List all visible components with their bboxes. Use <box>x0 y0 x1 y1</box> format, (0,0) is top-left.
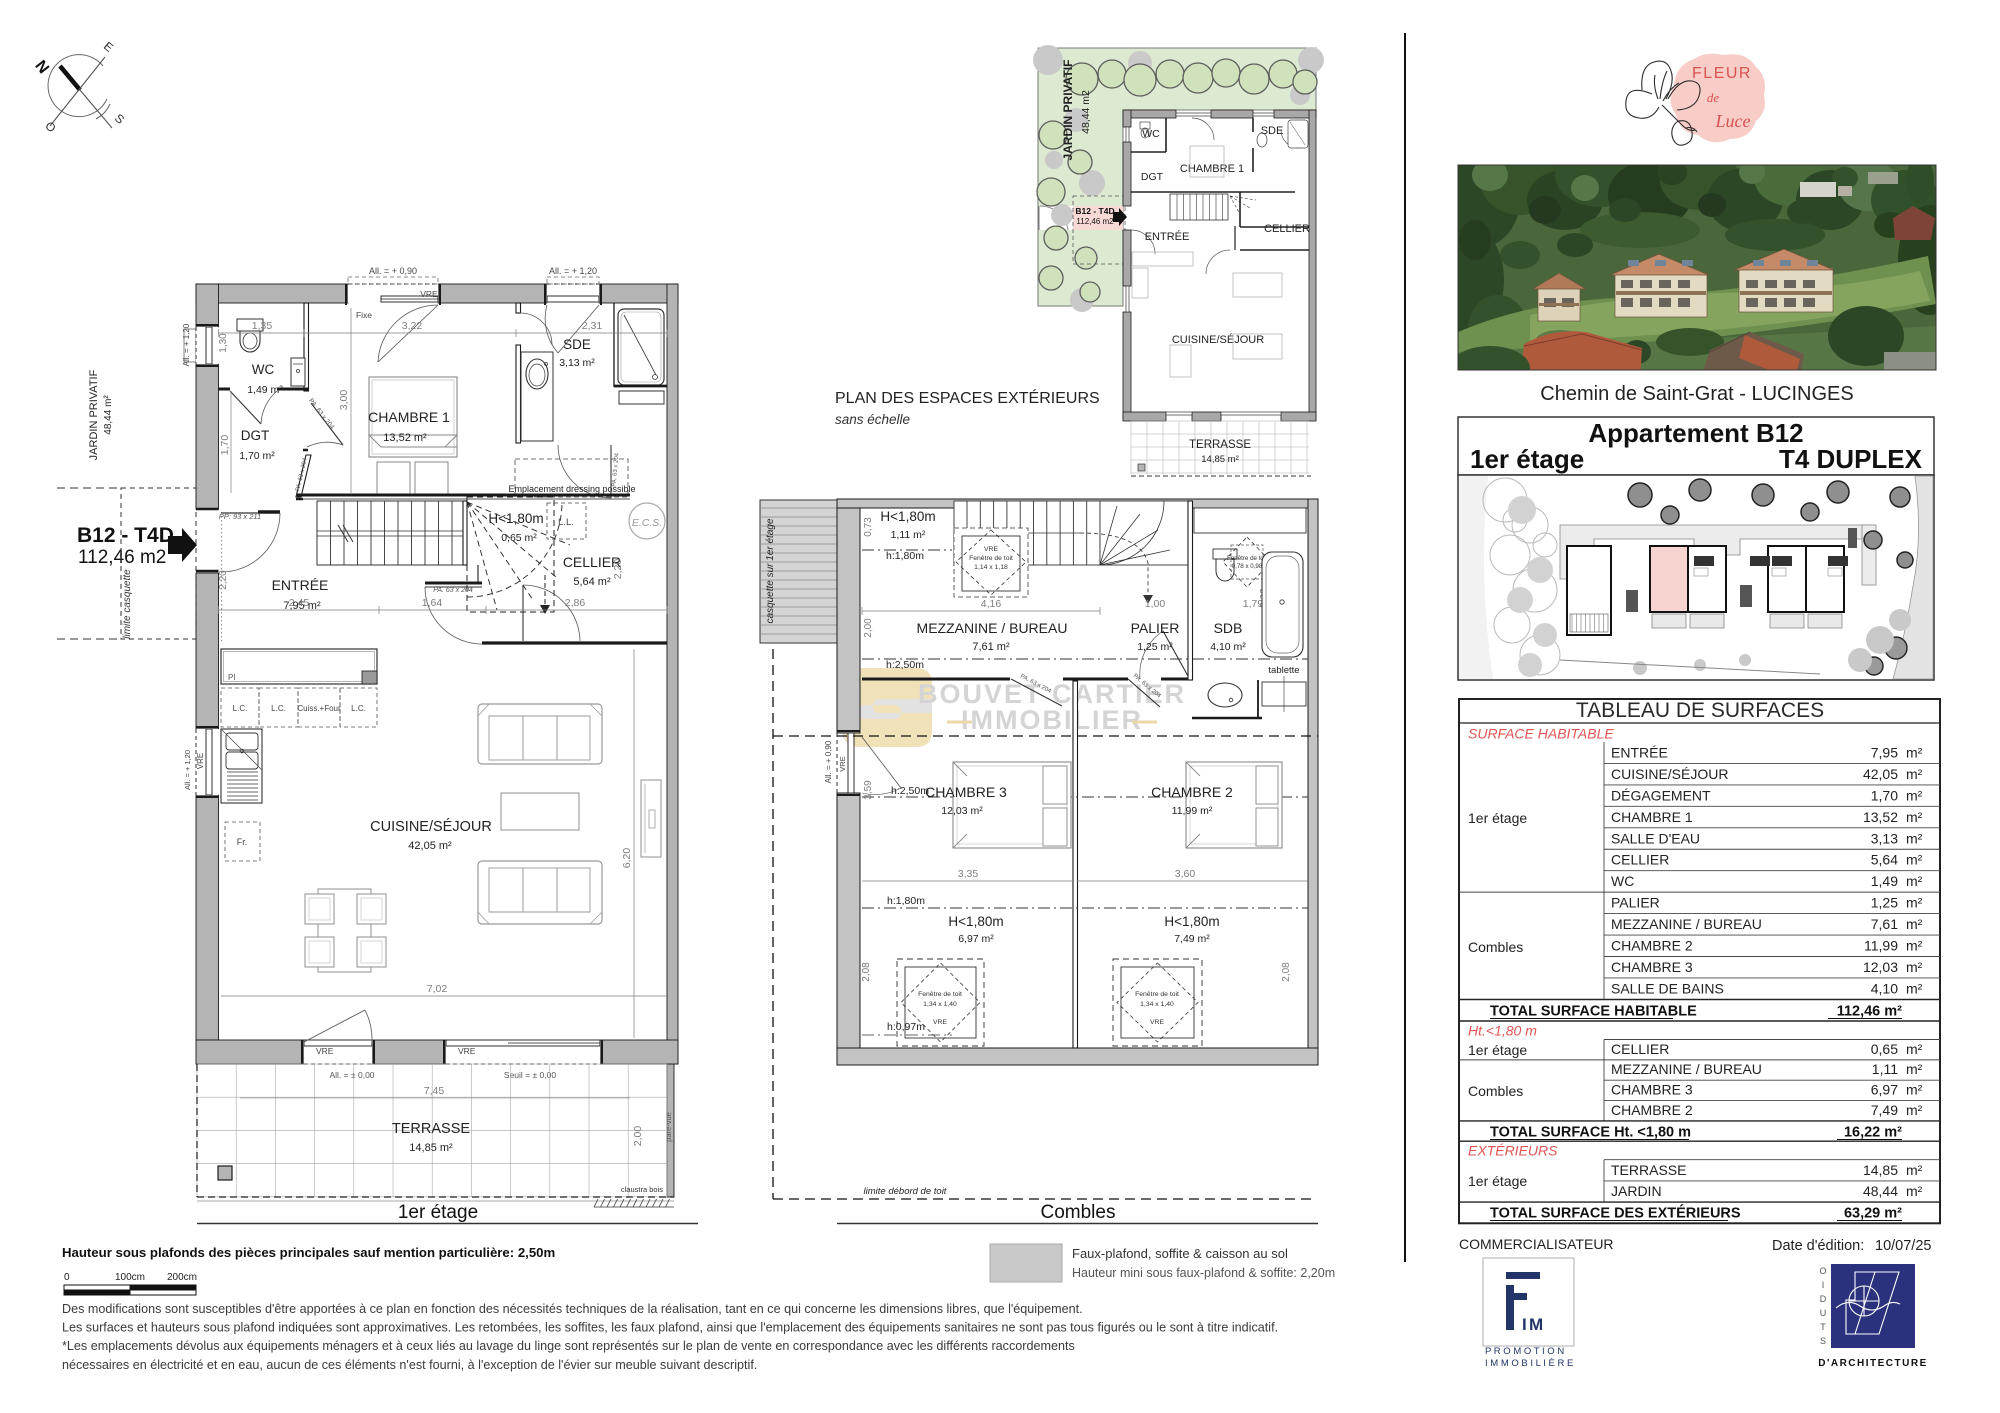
svg-text:4,10: 4,10 <box>1871 980 1898 996</box>
svg-text:VRE: VRE <box>420 289 438 299</box>
svg-text:Des modifications sont suscept: Des modifications sont susceptibles d'êt… <box>62 1302 1083 1316</box>
svg-text:M: M <box>1529 1315 1543 1334</box>
svg-text:L.C.: L.C. <box>351 704 366 713</box>
svg-text:6,20: 6,20 <box>621 848 633 869</box>
svg-text:112,46 m²: 112,46 m² <box>1837 1004 1902 1020</box>
svg-text:casquette sur 1er étage: casquette sur 1er étage <box>765 518 776 624</box>
svg-text:*Les emplacements dévolus aux: *Les emplacements dévolus aux équipement… <box>62 1339 1075 1353</box>
svg-text:Fenêtre de toit: Fenêtre de toit <box>918 991 962 998</box>
svg-text:m²: m² <box>1906 895 1923 911</box>
svg-text:4,16: 4,16 <box>981 598 1002 610</box>
svg-text:SDE: SDE <box>1261 125 1284 137</box>
svg-text:Emplacement dressing possible: Emplacement dressing possible <box>508 484 635 494</box>
svg-text:h:1,80m: h:1,80m <box>886 550 924 562</box>
svg-text:1,25: 1,25 <box>1871 895 1898 911</box>
svg-text:1,70 m²: 1,70 m² <box>239 450 275 462</box>
svg-text:m²: m² <box>1906 1082 1923 1098</box>
svg-text:SURFACE HABITABLE: SURFACE HABITABLE <box>1468 726 1614 742</box>
svg-text:2,08: 2,08 <box>861 962 872 982</box>
svg-text:3,13 m²: 3,13 m² <box>559 357 595 369</box>
svg-text:E.C.S.: E.C.S. <box>632 517 662 529</box>
svg-text:1,00: 1,00 <box>1145 598 1166 610</box>
svg-text:ENTRÉE: ENTRÉE <box>1145 230 1190 243</box>
svg-text:de: de <box>1707 90 1720 105</box>
svg-text:200cm: 200cm <box>167 1272 197 1283</box>
svg-text:m²: m² <box>1906 1162 1923 1178</box>
svg-text:EXTÉRIEURS: EXTÉRIEURS <box>1468 1143 1558 1159</box>
svg-text:CUISINE/SÉJOUR: CUISINE/SÉJOUR <box>1611 766 1728 782</box>
svg-text:PALIER: PALIER <box>1131 620 1180 636</box>
svg-text:48,44 m2: 48,44 m2 <box>1080 90 1092 134</box>
svg-text:14,85: 14,85 <box>1863 1162 1898 1178</box>
svg-text:Seuil = ± 0,00: Seuil = ± 0,00 <box>504 1070 556 1080</box>
svg-text:7,95: 7,95 <box>1871 744 1898 760</box>
svg-text:Hauteur sous plafonds des pièc: Hauteur sous plafonds des pièces princip… <box>62 1245 555 1260</box>
svg-text:0,65 m²: 0,65 m² <box>501 532 537 544</box>
svg-text:m²: m² <box>1906 1041 1923 1057</box>
svg-text:claustra bois: claustra bois <box>621 1185 663 1194</box>
svg-text:Chemin de Saint-Grat - LUCINGE: Chemin de Saint-Grat - LUCINGES <box>1540 383 1853 405</box>
svg-text:1er étage: 1er étage <box>1470 444 1584 474</box>
svg-text:TOTAL SURFACE Ht. <1,80 m: TOTAL SURFACE Ht. <1,80 m <box>1490 1125 1691 1141</box>
svg-text:sans échelle: sans échelle <box>835 412 910 427</box>
svg-text:7,49: 7,49 <box>1871 1102 1898 1118</box>
svg-text:limite casquette: limite casquette <box>122 569 133 639</box>
svg-text:h:0,97m: h:0,97m <box>887 1021 925 1033</box>
svg-text:10/07/25: 10/07/25 <box>1875 1238 1931 1254</box>
svg-text:1,11: 1,11 <box>1872 1061 1898 1077</box>
svg-text:CHAMBRE 1: CHAMBRE 1 <box>1611 809 1693 825</box>
svg-text:MEZZANINE / BUREAU: MEZZANINE / BUREAU <box>1611 1061 1762 1077</box>
svg-text:Combles: Combles <box>1468 1083 1523 1099</box>
svg-text:tablette: tablette <box>1268 665 1299 676</box>
svg-text:m²: m² <box>1906 744 1923 760</box>
svg-text:JARDIN PRIVATIF: JARDIN PRIVATIF <box>1061 60 1075 161</box>
svg-text:1,70: 1,70 <box>219 435 231 456</box>
svg-text:m²: m² <box>1906 809 1923 825</box>
svg-text:pare-vue: pare-vue <box>664 1112 673 1142</box>
svg-text:2,86: 2,86 <box>565 597 586 609</box>
svg-text:TERRASSE: TERRASSE <box>1611 1162 1686 1178</box>
svg-text:3,00: 3,00 <box>338 390 350 411</box>
svg-text:T4 DUPLEX: T4 DUPLEX <box>1779 444 1923 474</box>
svg-text:T: T <box>1820 1322 1826 1332</box>
svg-text:CHAMBRE 1: CHAMBRE 1 <box>1180 163 1244 175</box>
svg-text:h:1,80m: h:1,80m <box>887 895 925 907</box>
svg-text:WC: WC <box>252 362 275 377</box>
svg-text:2,31: 2,31 <box>582 320 603 332</box>
svg-text:m²: m² <box>1906 873 1923 889</box>
svg-text:1,35: 1,35 <box>252 320 273 332</box>
svg-text:h:2,50m: h:2,50m <box>891 785 929 797</box>
svg-text:CELLIER: CELLIER <box>1264 223 1310 235</box>
svg-text:CHAMBRE 2: CHAMBRE 2 <box>1611 1102 1693 1118</box>
svg-text:H<1,80m: H<1,80m <box>1164 914 1219 929</box>
svg-text:0: 0 <box>64 1272 70 1283</box>
svg-text:CHAMBRE 3: CHAMBRE 3 <box>1611 1082 1693 1098</box>
svg-text:VRE: VRE <box>316 1046 334 1056</box>
svg-text:PALIER: PALIER <box>1611 895 1660 911</box>
svg-text:2,00: 2,00 <box>863 618 874 638</box>
svg-text:DGT: DGT <box>241 428 270 443</box>
svg-text:m²: m² <box>1906 1061 1923 1077</box>
svg-text:m²: m² <box>1906 1183 1923 1199</box>
svg-text:D: D <box>1820 1294 1827 1304</box>
svg-text:L.C.: L.C. <box>233 704 248 713</box>
svg-text:3,22: 3,22 <box>402 320 423 332</box>
svg-text:5,64: 5,64 <box>1871 852 1898 868</box>
svg-text:All. = + 1,20: All. = + 1,20 <box>183 750 192 790</box>
svg-text:ENTRÉE: ENTRÉE <box>1611 744 1668 760</box>
svg-text:B12 - T4D: B12 - T4D <box>1075 206 1114 216</box>
svg-text:PA. 63 x 204: PA. 63 x 204 <box>433 587 473 594</box>
svg-text:4,10 m²: 4,10 m² <box>1210 641 1246 653</box>
svg-text:13,52: 13,52 <box>1863 809 1898 825</box>
svg-text:48,44: 48,44 <box>1863 1183 1898 1199</box>
svg-text:h:2,50m: h:2,50m <box>886 659 924 671</box>
svg-text:VRE: VRE <box>458 1046 476 1056</box>
svg-text:7,61: 7,61 <box>1871 916 1898 932</box>
svg-text:VRE: VRE <box>933 1019 947 1026</box>
svg-text:m²: m² <box>1906 1102 1923 1118</box>
svg-text:CUISINE/SÉJOUR: CUISINE/SÉJOUR <box>1172 333 1264 346</box>
svg-text:Fenêtre de toit: Fenêtre de toit <box>1135 991 1179 998</box>
svg-text:All. = + 1,20: All. = + 1,20 <box>182 323 191 366</box>
svg-text:m²: m² <box>1906 916 1923 932</box>
svg-text:U: U <box>1820 1308 1827 1318</box>
svg-text:H<1,80m: H<1,80m <box>948 914 1003 929</box>
svg-text:JARDIN PRIVATIF: JARDIN PRIVATIF <box>88 369 100 460</box>
svg-text:1,34 x 1,40: 1,34 x 1,40 <box>923 1001 957 1008</box>
svg-text:100cm: 100cm <box>115 1272 145 1283</box>
svg-text:CHAMBRE 3: CHAMBRE 3 <box>1611 959 1693 975</box>
svg-text:m²: m² <box>1906 830 1923 846</box>
svg-text:63,29 m²: 63,29 m² <box>1844 1206 1902 1222</box>
svg-text:12,03: 12,03 <box>1863 959 1898 975</box>
svg-text:Fixe: Fixe <box>356 310 372 320</box>
svg-text:TOTAL SURFACE DES EXTÉRIEURS: TOTAL SURFACE DES EXTÉRIEURS <box>1490 1205 1741 1222</box>
svg-text:limite débord de toit: limite débord de toit <box>864 1186 947 1197</box>
svg-text:1,25 m²: 1,25 m² <box>1137 641 1173 653</box>
svg-text:SDE: SDE <box>563 337 591 352</box>
svg-text:1,11 m²: 1,11 m² <box>891 529 926 541</box>
svg-text:CHAMBRE 3: CHAMBRE 3 <box>925 784 1007 800</box>
svg-text:H<1,80m: H<1,80m <box>488 511 543 526</box>
svg-text:Les surfaces et hauteurs sous: Les surfaces et hauteurs sous plafond in… <box>62 1321 1278 1335</box>
svg-text:SALLE DE BAINS: SALLE DE BAINS <box>1611 980 1724 996</box>
svg-text:1,34 x 1,40: 1,34 x 1,40 <box>1140 1001 1174 1008</box>
svg-text:Cuiss.+Four: Cuiss.+Four <box>297 704 341 713</box>
svg-text:1,70: 1,70 <box>1871 787 1898 803</box>
svg-text:FLEUR: FLEUR <box>1692 65 1752 82</box>
svg-text:42,05: 42,05 <box>1863 766 1898 782</box>
svg-text:3,60: 3,60 <box>1175 868 1196 880</box>
svg-text:Date d'édition:: Date d'édition: <box>1772 1238 1864 1254</box>
svg-text:O: O <box>1819 1266 1826 1276</box>
svg-text:PP: 93 x 211: PP: 93 x 211 <box>219 512 261 521</box>
svg-text:3,35: 3,35 <box>958 868 979 880</box>
svg-text:I: I <box>1822 1280 1825 1290</box>
svg-text:14,85 m²: 14,85 m² <box>1201 454 1239 465</box>
svg-text:0,73: 0,73 <box>863 517 874 537</box>
svg-text:WC: WC <box>1611 873 1634 889</box>
svg-text:7,61 m²: 7,61 m² <box>972 641 1010 653</box>
svg-text:14,85 m²: 14,85 m² <box>409 1142 453 1154</box>
svg-text:Fenêtre de toit: Fenêtre de toit <box>969 555 1013 562</box>
svg-text:TERRASSE: TERRASSE <box>1189 439 1251 451</box>
svg-text:1er étage: 1er étage <box>1468 1173 1527 1189</box>
svg-text:1er étage: 1er étage <box>398 1202 478 1223</box>
svg-text:1,64: 1,64 <box>422 597 443 609</box>
svg-text:2,20: 2,20 <box>218 570 229 590</box>
svg-text:7,45: 7,45 <box>424 1085 445 1097</box>
svg-text:SDB: SDB <box>1214 620 1243 636</box>
svg-text:All. = + 0,90: All. = + 0,90 <box>824 740 833 783</box>
svg-text:6,97: 6,97 <box>1871 1082 1898 1098</box>
svg-text:All. = + 0,90: All. = + 0,90 <box>369 266 417 276</box>
svg-text:1,49 m²: 1,49 m² <box>247 384 283 396</box>
svg-text:IMMOBILIER: IMMOBILIER <box>961 705 1143 735</box>
svg-text:2,00: 2,00 <box>632 1126 644 1147</box>
svg-text:CUISINE/SÉJOUR: CUISINE/SÉJOUR <box>370 818 492 835</box>
svg-text:112,46 m2: 112,46 m2 <box>78 547 166 568</box>
svg-text:MEZZANINE / BUREAU: MEZZANINE / BUREAU <box>917 620 1068 636</box>
svg-text:Faux-plafond, soffite & caisso: Faux-plafond, soffite & caisson au sol <box>1072 1246 1288 1261</box>
svg-text:3,13: 3,13 <box>1871 830 1898 846</box>
svg-text:2,20: 2,20 <box>612 559 624 580</box>
svg-text:Hauteur mini sous faux-plafond: Hauteur mini sous faux-plafond & soffite… <box>1072 1266 1335 1280</box>
svg-text:CHAMBRE 2: CHAMBRE 2 <box>1151 784 1233 800</box>
svg-text:1,49: 1,49 <box>1871 873 1898 889</box>
svg-text:All. = ± 0,00: All. = ± 0,00 <box>329 1070 374 1080</box>
svg-text:Appartement B12: Appartement B12 <box>1588 418 1803 448</box>
svg-text:COMMERCIALISATEUR: COMMERCIALISATEUR <box>1459 1236 1614 1252</box>
svg-text:D'ARCHITECTURE: D'ARCHITECTURE <box>1818 1358 1928 1369</box>
svg-text:42,05 m²: 42,05 m² <box>408 840 452 852</box>
svg-text:1er étage: 1er étage <box>1468 1042 1527 1058</box>
svg-text:VRE: VRE <box>984 546 998 553</box>
svg-text:WC: WC <box>1142 128 1160 140</box>
svg-text:3,59: 3,59 <box>863 780 874 800</box>
svg-text:Luce: Luce <box>1715 111 1751 131</box>
svg-text:m²: m² <box>1906 980 1923 996</box>
svg-text:S: S <box>1820 1336 1826 1346</box>
svg-text:Combles: Combles <box>1468 939 1523 955</box>
svg-text:All. = + 1,20: All. = + 1,20 <box>549 266 597 276</box>
svg-text:L.L.: L.L. <box>558 517 574 528</box>
svg-text:CELLIER: CELLIER <box>1611 1041 1669 1057</box>
svg-text:2,08: 2,08 <box>1281 962 1292 982</box>
svg-text:B12 - T4D: B12 - T4D <box>77 524 174 547</box>
svg-text:SALLE D'EAU: SALLE D'EAU <box>1611 830 1700 846</box>
svg-text:48,44 m²: 48,44 m² <box>103 395 114 435</box>
svg-text:112,46 m2: 112,46 m2 <box>1076 217 1114 226</box>
svg-text:P R O M O T I O N: P R O M O T I O N <box>1485 1346 1564 1357</box>
svg-text:VRE: VRE <box>1150 1019 1164 1026</box>
svg-text:CHAMBRE 1: CHAMBRE 1 <box>368 409 450 425</box>
svg-text:7,02: 7,02 <box>427 983 448 995</box>
svg-text:VRE: VRE <box>196 753 205 769</box>
svg-text:MEZZANINE / BUREAU: MEZZANINE / BUREAU <box>1611 916 1762 932</box>
svg-text:Fenêtre de toit: Fenêtre de toit <box>1227 555 1267 562</box>
svg-text:VRE: VRE <box>838 756 847 771</box>
svg-text:11,99 m²: 11,99 m² <box>1172 805 1213 817</box>
svg-text:1,14 x 1,18: 1,14 x 1,18 <box>974 564 1008 571</box>
svg-text:16,22 m²: 16,22 m² <box>1844 1125 1902 1141</box>
svg-text:nécessaires en électricité et: nécessaires en électricité et en eau, au… <box>62 1358 757 1372</box>
svg-text:ENTRÉE: ENTRÉE <box>272 577 329 593</box>
svg-text:Combles: Combles <box>1041 1202 1116 1223</box>
svg-text:L.C.: L.C. <box>271 704 286 713</box>
svg-text:0,78 x 0,98: 0,78 x 0,98 <box>1232 563 1263 570</box>
svg-text:DÉGAGEMENT: DÉGAGEMENT <box>1611 787 1711 803</box>
svg-text:I M M O B I L I È R E: I M M O B I L I È R E <box>1485 1358 1573 1369</box>
svg-text:m²: m² <box>1906 766 1923 782</box>
svg-text:0,65: 0,65 <box>1871 1041 1898 1057</box>
svg-text:CELLIER: CELLIER <box>1611 852 1669 868</box>
svg-text:Fr.: Fr. <box>237 837 248 847</box>
svg-text:TABLEAU DE SURFACES: TABLEAU DE SURFACES <box>1576 699 1824 722</box>
svg-text:TERRASSE: TERRASSE <box>392 1121 470 1137</box>
svg-text:DGT: DGT <box>1141 171 1164 183</box>
svg-text:JARDIN: JARDIN <box>1611 1183 1662 1199</box>
svg-text:12,03 m²: 12,03 m² <box>941 805 983 817</box>
svg-text:PI: PI <box>228 673 236 682</box>
svg-text:CHAMBRE 2: CHAMBRE 2 <box>1611 938 1693 954</box>
svg-text:11,99: 11,99 <box>1864 938 1898 954</box>
svg-text:m²: m² <box>1906 787 1923 803</box>
svg-text:m²: m² <box>1906 959 1923 975</box>
svg-text:7,49 m²: 7,49 m² <box>1174 933 1210 945</box>
svg-text:m²: m² <box>1906 852 1923 868</box>
svg-text:PLAN DES ESPACES EXTÉRIEURS: PLAN DES ESPACES EXTÉRIEURS <box>835 388 1100 407</box>
svg-text:2,45: 2,45 <box>289 597 310 609</box>
svg-text:5,64 m²: 5,64 m² <box>573 576 611 588</box>
svg-text:1,30: 1,30 <box>218 333 229 353</box>
svg-text:Ht.<1,80 m: Ht.<1,80 m <box>1468 1023 1537 1039</box>
svg-text:I: I <box>1522 1315 1527 1334</box>
svg-text:13,52 m²: 13,52 m² <box>383 432 427 444</box>
svg-text:TOTAL SURFACE HABITABLE: TOTAL SURFACE HABITABLE <box>1490 1004 1697 1020</box>
svg-text:H<1,80m: H<1,80m <box>880 509 935 524</box>
svg-text:6,97 m²: 6,97 m² <box>958 933 994 945</box>
svg-text:m²: m² <box>1906 938 1923 954</box>
svg-text:1er étage: 1er étage <box>1468 810 1527 826</box>
